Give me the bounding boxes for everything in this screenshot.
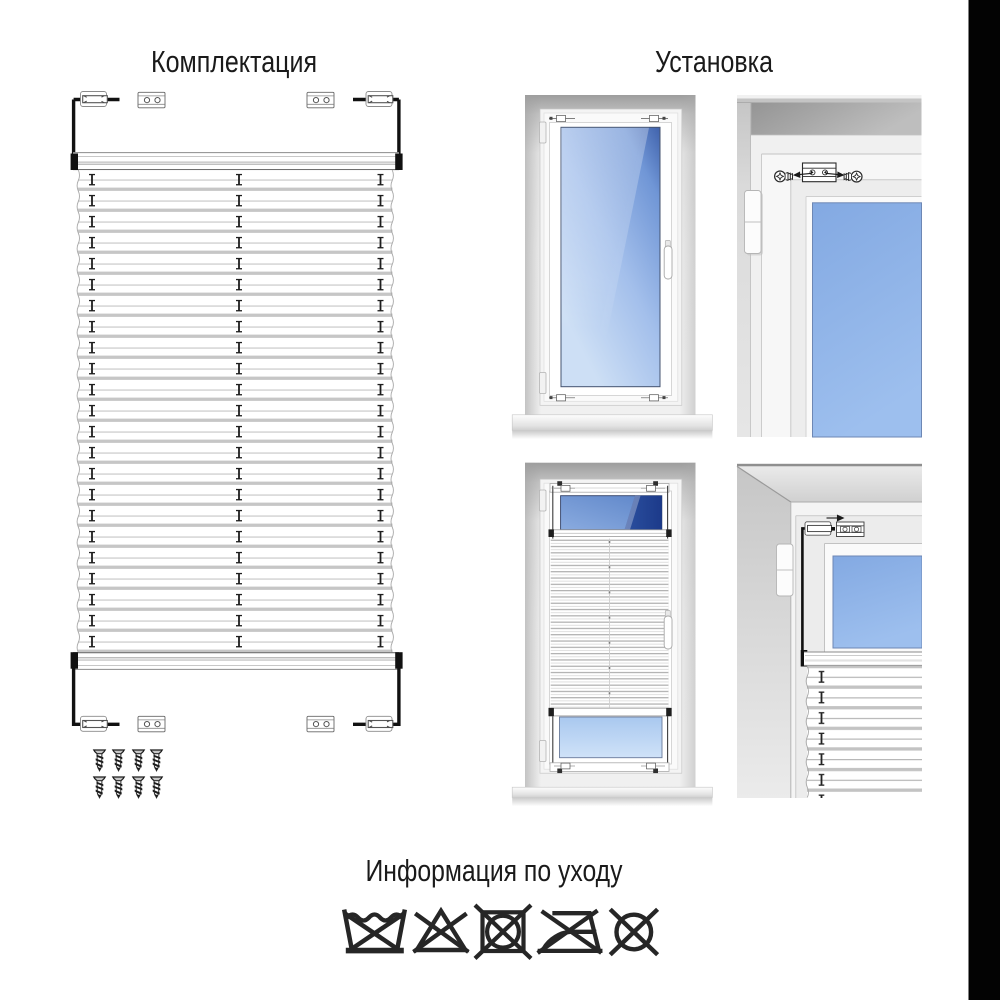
- svg-text:Установка: Установка: [655, 44, 774, 79]
- svg-text:Комплектация: Комплектация: [151, 44, 317, 79]
- svg-text:Информация по уходу: Информация по уходу: [366, 853, 623, 888]
